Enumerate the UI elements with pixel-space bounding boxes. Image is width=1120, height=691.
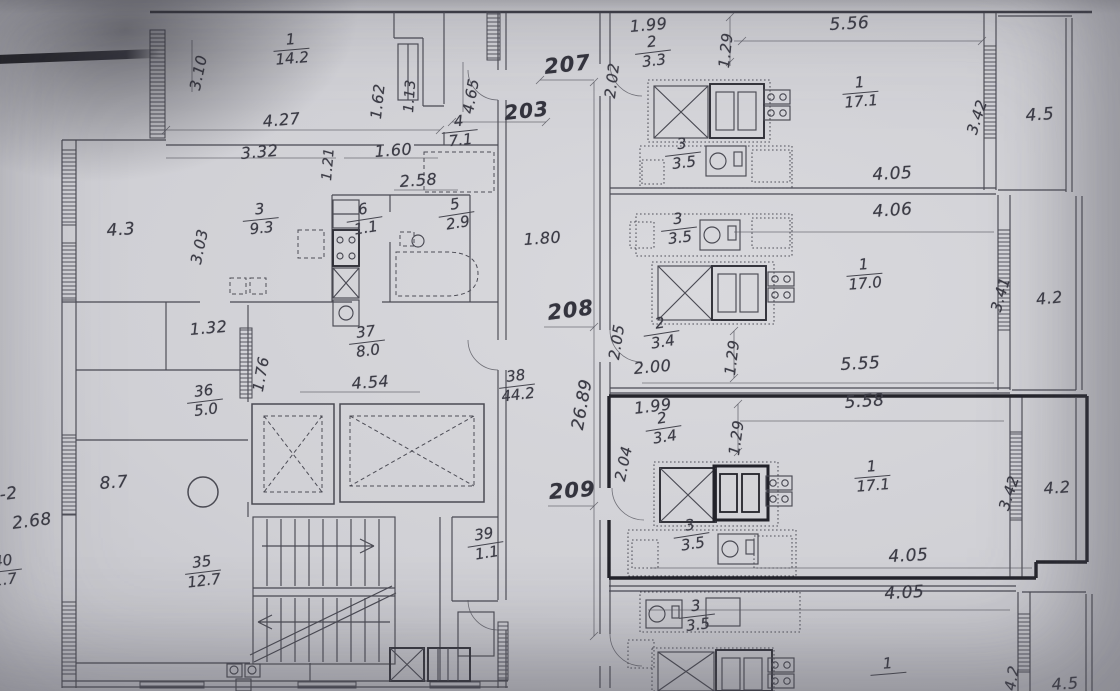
apt208-room-3-label: 33.5 xyxy=(659,210,699,249)
apt207-fixtures xyxy=(640,80,792,188)
apt209-dim-558-label: 5.58 xyxy=(844,390,885,413)
apt208-dim-555-label: 5.55 xyxy=(840,353,881,375)
floorplan-drawing xyxy=(0,0,1120,691)
dim-332-label: 3.32 xyxy=(240,141,279,163)
apt208-dim-200-label: 2.00 xyxy=(633,356,672,378)
right-apartment-walls xyxy=(609,13,1092,691)
apt209-room-3-label: 33.5 xyxy=(671,515,712,555)
structural-column xyxy=(188,477,218,507)
apt208-room-1-label: 117.0 xyxy=(845,256,884,294)
balcony-43-label: 4.3 xyxy=(106,219,136,241)
dim-454-label: 4.54 xyxy=(351,371,390,393)
apt209-room-3-area: 3.5 xyxy=(680,534,706,554)
apt207-room-1-label: 117.1 xyxy=(841,74,880,112)
dim-121-label: 1.21 xyxy=(319,147,338,181)
elevator-1 xyxy=(252,404,334,504)
apt209-fixtures xyxy=(628,462,796,576)
room-36-area: 5.0 xyxy=(193,400,219,420)
apt209-room-2-label: 23.4 xyxy=(643,408,684,448)
hall-87-label: 8.7 xyxy=(99,472,129,494)
apt210-balcony-45-label: 4.5 xyxy=(1051,673,1079,691)
room-39-area: 1.1 xyxy=(474,543,500,563)
dim-132-label: 1.32 xyxy=(189,317,228,339)
room-40-area: 1.7 xyxy=(0,570,18,590)
room-37-label: 378.0 xyxy=(347,323,387,362)
apt209-room-1-area: 17.1 xyxy=(856,476,891,496)
apt207-room-2-label: 23.3 xyxy=(633,33,673,72)
room-1-label: 114.2 xyxy=(272,31,311,69)
apt209-dim-405-label: 4.05 xyxy=(888,545,929,567)
apt209-room-1-label: 117.1 xyxy=(853,458,892,496)
room-5-area: 2.9 xyxy=(445,213,471,233)
apt208-room-3-area: 3.5 xyxy=(667,228,693,248)
elevator-2 xyxy=(340,404,484,502)
stair-direction-arrows xyxy=(258,539,390,629)
corridor-207-label: 207 xyxy=(543,50,592,79)
apt208-room-2-area: 3.4 xyxy=(650,332,676,352)
apt208-fixtures xyxy=(630,214,794,324)
apt210-room-3-area: 3.5 xyxy=(685,615,711,635)
room-4-area: 7.1 xyxy=(448,131,473,150)
apt207-room-3-area: 3.5 xyxy=(671,153,697,173)
apt207-balcony-45-label: 4.5 xyxy=(1025,104,1055,126)
stairs xyxy=(250,517,396,664)
apt207-room-3-label: 33.5 xyxy=(663,135,703,174)
apt208-dim-406-label: 4.06 xyxy=(872,199,913,222)
apt207-room-2-area: 3.3 xyxy=(641,51,667,71)
corridor-209-label: 209 xyxy=(548,477,596,504)
apt208-room-2-label: 23.4 xyxy=(641,313,682,353)
apt207-room-1-area: 17.1 xyxy=(844,92,879,112)
room-1-area: 14.2 xyxy=(275,49,310,69)
room-6-label: 61.1 xyxy=(344,199,385,239)
apt210-room-1-number: 1 xyxy=(869,655,906,676)
room-37-area: 8.0 xyxy=(355,341,381,361)
dim-180-label: 1.80 xyxy=(523,227,562,249)
apt207-dim-129-label: 1.29 xyxy=(715,32,737,69)
room-38-label: 3844.2 xyxy=(497,367,537,406)
dim-258-label: 2.58 xyxy=(399,169,438,191)
apt210-room-1-label: 1 xyxy=(869,655,906,677)
floorplan-photo: 3.101.621.134.654.273.321.601.212.582072… xyxy=(0,0,1120,691)
room-6-area: 1.1 xyxy=(353,218,379,238)
apt207-dim-556-label: 5.56 xyxy=(829,13,870,35)
wall-k2-label: К-2 xyxy=(0,483,19,507)
room-36-label: 365.0 xyxy=(185,382,225,421)
room-40-label: 401.7 xyxy=(0,552,24,591)
apt209-room-2-area: 3.4 xyxy=(652,427,678,447)
dim-160-label: 1.60 xyxy=(374,139,413,161)
apt210-room-3-label: 33.5 xyxy=(677,597,717,636)
apt208-room-1-area: 17.0 xyxy=(848,274,883,294)
dim-203-label: 203 xyxy=(503,96,550,125)
dim-162-label: 1.62 xyxy=(367,83,389,120)
apt208-balcony-42-label: 4.2 xyxy=(1035,287,1064,309)
bottom-left-rooms xyxy=(76,517,498,681)
room-35-label: 3512.7 xyxy=(183,553,223,592)
apt210-dim-405-label: 4.05 xyxy=(884,582,925,604)
dim-427-label: 4.27 xyxy=(262,109,301,131)
apt207-dim-405-label: 4.05 xyxy=(872,163,913,185)
room-39-label: 391.1 xyxy=(465,524,506,564)
room-4-label: 47.1 xyxy=(440,112,479,150)
left-apartment-walls xyxy=(62,12,498,517)
dim-113-label: 1.13 xyxy=(401,79,419,113)
room-3-area: 9.3 xyxy=(249,219,274,238)
room-5-label: 52.9 xyxy=(436,194,477,234)
room-3-label: 39.3 xyxy=(241,200,280,238)
apt209-balcony-42-label: 4.2 xyxy=(1043,477,1071,498)
